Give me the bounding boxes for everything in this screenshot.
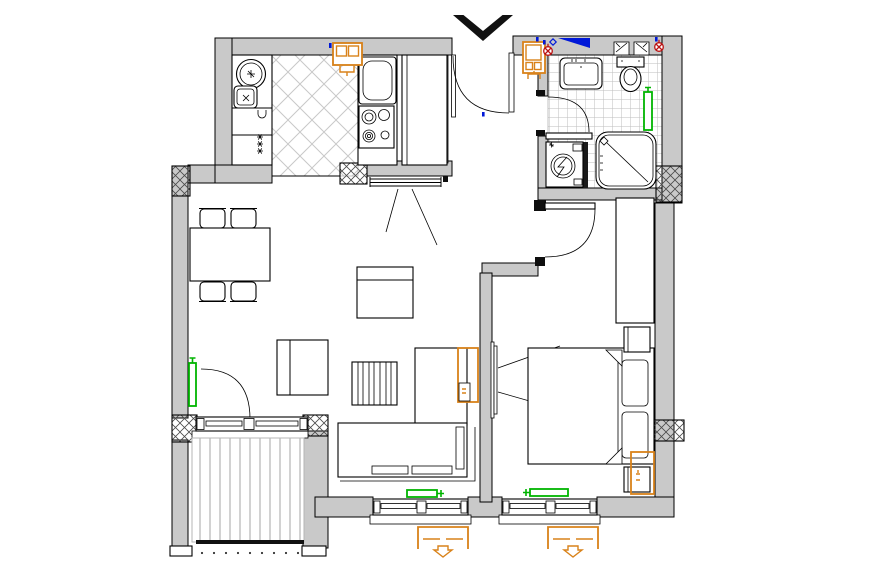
- blue-tick: [536, 37, 539, 42]
- window-glazing: [206, 421, 242, 426]
- toilet-tank: [617, 57, 644, 67]
- door-jamb-cap: [536, 90, 545, 96]
- fridge: [359, 57, 396, 104]
- window-cap: [374, 501, 380, 513]
- wall-bedroom-right: [655, 203, 674, 517]
- wall-bottom-left: [315, 497, 373, 517]
- bedroom-tv: [491, 342, 494, 418]
- dining-chair: [200, 209, 225, 228]
- sofa-side-table: [459, 383, 470, 401]
- window-glazing: [510, 504, 545, 509]
- balcony-door-arc: [201, 369, 250, 419]
- window-cap: [300, 419, 307, 430]
- hall-door-arc: [545, 209, 595, 257]
- pier-right-top: [656, 166, 682, 202]
- hallway: [545, 198, 654, 323]
- blue-tick: [655, 37, 658, 42]
- wall-balcony-right: [303, 431, 328, 548]
- window-cap: [461, 501, 467, 513]
- wall-balcony-left: [172, 440, 188, 548]
- armchair-left: [277, 340, 328, 395]
- pier-right-bottom: [653, 420, 684, 441]
- hall-door-leaf: [545, 203, 595, 209]
- tall-cabinet: [402, 55, 447, 165]
- entrance-door-leaf: [509, 53, 514, 112]
- pier-kitchen-bottom: [340, 163, 367, 184]
- dining-chair: [231, 282, 256, 301]
- wall-stub-cap: [534, 200, 546, 211]
- floor-plan: [0, 0, 880, 580]
- window-mullion: [546, 501, 555, 513]
- window-sill: [499, 515, 600, 524]
- window-glazing: [556, 504, 589, 509]
- balcony: [170, 417, 326, 556]
- door-jamb-cap: [536, 130, 545, 136]
- radiator-bathroom: [644, 92, 652, 130]
- balcony-footing: [302, 546, 326, 556]
- dining-table: [190, 228, 270, 281]
- wall-bottom-right: [597, 497, 674, 517]
- blue-tick: [482, 112, 485, 117]
- blue-tick: [329, 43, 332, 48]
- pillow: [622, 360, 648, 406]
- shower-partition: [583, 142, 588, 188]
- sofa-cushion: [372, 466, 408, 474]
- window-cap: [503, 501, 509, 513]
- wardrobe-tall: [616, 198, 654, 323]
- radiator-valve: [437, 490, 444, 497]
- window-cap: [590, 501, 596, 513]
- window-glazing: [427, 504, 460, 509]
- knob-glyphs: [257, 134, 263, 153]
- balcony-sill: [192, 431, 308, 438]
- living-wall-tv: [370, 177, 441, 245]
- entrance: [452, 13, 546, 117]
- window-sill: [370, 515, 471, 524]
- slatted-coffee-table: [352, 362, 397, 405]
- tv-lines: [370, 177, 441, 187]
- awning-arrow-down: [434, 546, 452, 557]
- radiator-bedroom: [530, 489, 568, 496]
- window-glazing: [381, 504, 416, 509]
- wall-stub-cap: [443, 176, 448, 182]
- balcony-dotted-line: [201, 552, 299, 554]
- wall-kitchen-left: [215, 38, 232, 183]
- bedroom-tv-screen: [494, 346, 497, 414]
- bathroom-door-leaf: [546, 133, 592, 139]
- window-glazing: [256, 421, 298, 426]
- washing-machine: [546, 142, 583, 187]
- dining-chair: [200, 282, 225, 301]
- plank-deck: [192, 438, 304, 542]
- wall-bedroom-left: [480, 273, 492, 502]
- wall-living-left: [172, 166, 188, 418]
- armchair-top: [357, 267, 413, 318]
- balcony-edge: [196, 540, 304, 544]
- radiator-living-left: [189, 363, 196, 406]
- wall-vent: [634, 42, 649, 55]
- bedroom: [491, 327, 654, 496]
- radiator-valve: [523, 489, 530, 496]
- wall-vent: [614, 42, 629, 55]
- door-jamb-cap: [535, 257, 545, 266]
- sofa-armrest: [456, 427, 464, 469]
- window-mullion: [244, 419, 254, 430]
- balcony-footing: [170, 546, 192, 556]
- dining-chair: [231, 209, 256, 228]
- wall-kitchen-bottom-left: [215, 165, 272, 183]
- window-cap: [197, 419, 204, 430]
- blue-tick: [543, 40, 546, 45]
- awning-arrow-down: [564, 546, 582, 557]
- pier-left-top: [172, 166, 190, 196]
- toilet-bowl: [620, 67, 641, 92]
- floor-plan-canvas: [0, 0, 880, 580]
- entrance-door-arc: [453, 56, 509, 113]
- sofa-cushion: [412, 466, 452, 474]
- radiator-living-bottom: [407, 490, 437, 497]
- tv-view-angle: [386, 189, 437, 245]
- window-mullion: [417, 501, 426, 513]
